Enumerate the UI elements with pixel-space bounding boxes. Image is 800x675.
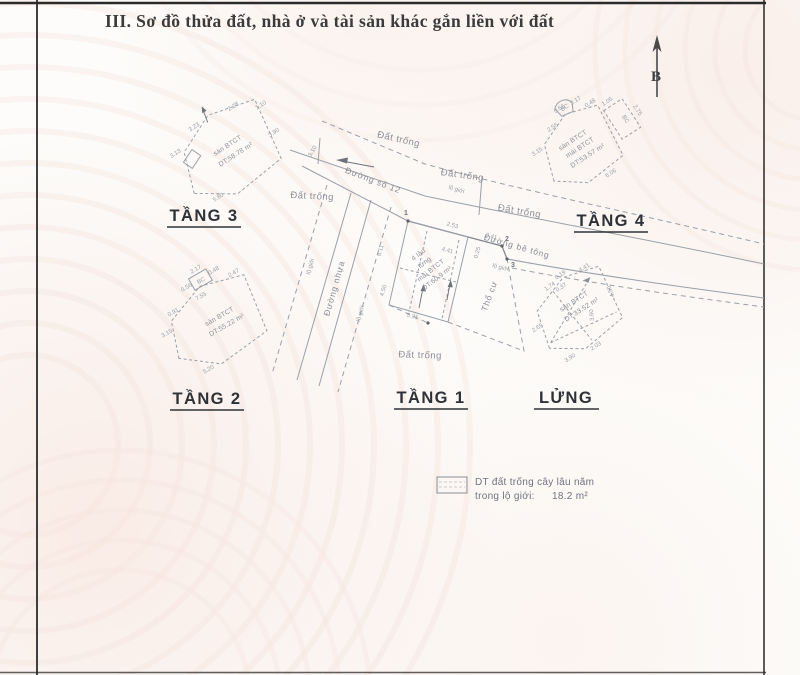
caption-tang3: TẦNG 3 [170,206,239,225]
scanned-cadastral-sheet: III. Sơ đồ thửa đất, nhà ở và tài sản kh… [0,0,800,675]
dimension: 0.91 [167,307,181,318]
dimension: 1.05 [601,96,615,108]
lo-gioi-label: lộ giới [492,263,509,273]
lo-gioi-label: lộ giới [306,258,316,275]
dimension: 2.28 [227,101,241,113]
corner-number: 2 [505,236,509,243]
caption-tang2: TẦNG 2 [173,389,242,408]
road-network [272,121,764,392]
corner-number: 3 [511,262,515,269]
dimension: 1.74 [544,281,558,293]
corner-number: 1 [404,210,408,217]
road-direction-arrow-icon [336,158,348,164]
sketch-arrow-icon [584,276,593,284]
dimension: 4.41 [441,247,454,256]
caption-tang4: TẦNG 4 [577,211,646,230]
legend-value: 18.2 m² [552,491,588,502]
dimension: 0.37 [555,282,569,294]
dimension: 6.11 [377,244,386,257]
legend: DT đất trống cây lâu năm trong lộ giới: … [437,476,594,502]
legend-hatch-swatch [437,477,467,493]
dimension: 2.55 [546,122,560,134]
dimension: 3.60 [589,308,596,321]
balcony-label: BC [620,114,630,125]
dimension: 0.19 [554,269,568,281]
lo-gioi-label: lộ giới [356,305,366,322]
dat-trong-label: Đất trống [398,349,442,362]
legend-text-line1: DT đất trống cây lâu năm [475,476,594,488]
interior-arrow-icon [448,280,453,287]
dimension: 5.20 [202,364,216,375]
dat-trong-label: Đất trống [440,167,485,184]
watermark-pattern [0,0,800,675]
north-label: B [651,69,661,85]
caption-tang1: TẦNG 1 [397,388,466,407]
lo-gioi-label: lộ giới [448,185,465,195]
dat-trong-label: Đất trống [497,202,542,220]
dimension: 3.90 [564,352,578,364]
dimension: 6.06 [605,168,619,180]
dimension: 2.03 [590,341,604,353]
dimension: 2.65 [531,322,545,334]
dimension: 3.15 [531,146,545,158]
dimension: 0.48 [584,98,598,110]
dimension: 0.25 [474,246,483,259]
dimension: 3.90 [268,127,282,139]
dimension: 2.53 [446,222,459,231]
dimension: 2.47 [227,268,241,279]
section-title: III. Sơ đồ thửa đất, nhà ở và tài sản kh… [105,11,554,31]
dat-trong-label: Đất trống [290,190,334,203]
caption-lung: LỬNG [539,388,593,407]
dimension: 3.23 [188,122,202,134]
tho-cu-label: Thổ cư [479,279,499,312]
dimension: 3.13 [169,148,183,160]
dimension: 4.50 [606,284,616,298]
dimension: 4.50 [380,284,389,298]
legend-text-line2: trong lộ giới: [475,491,535,502]
dimension: 7.55 [195,291,209,302]
